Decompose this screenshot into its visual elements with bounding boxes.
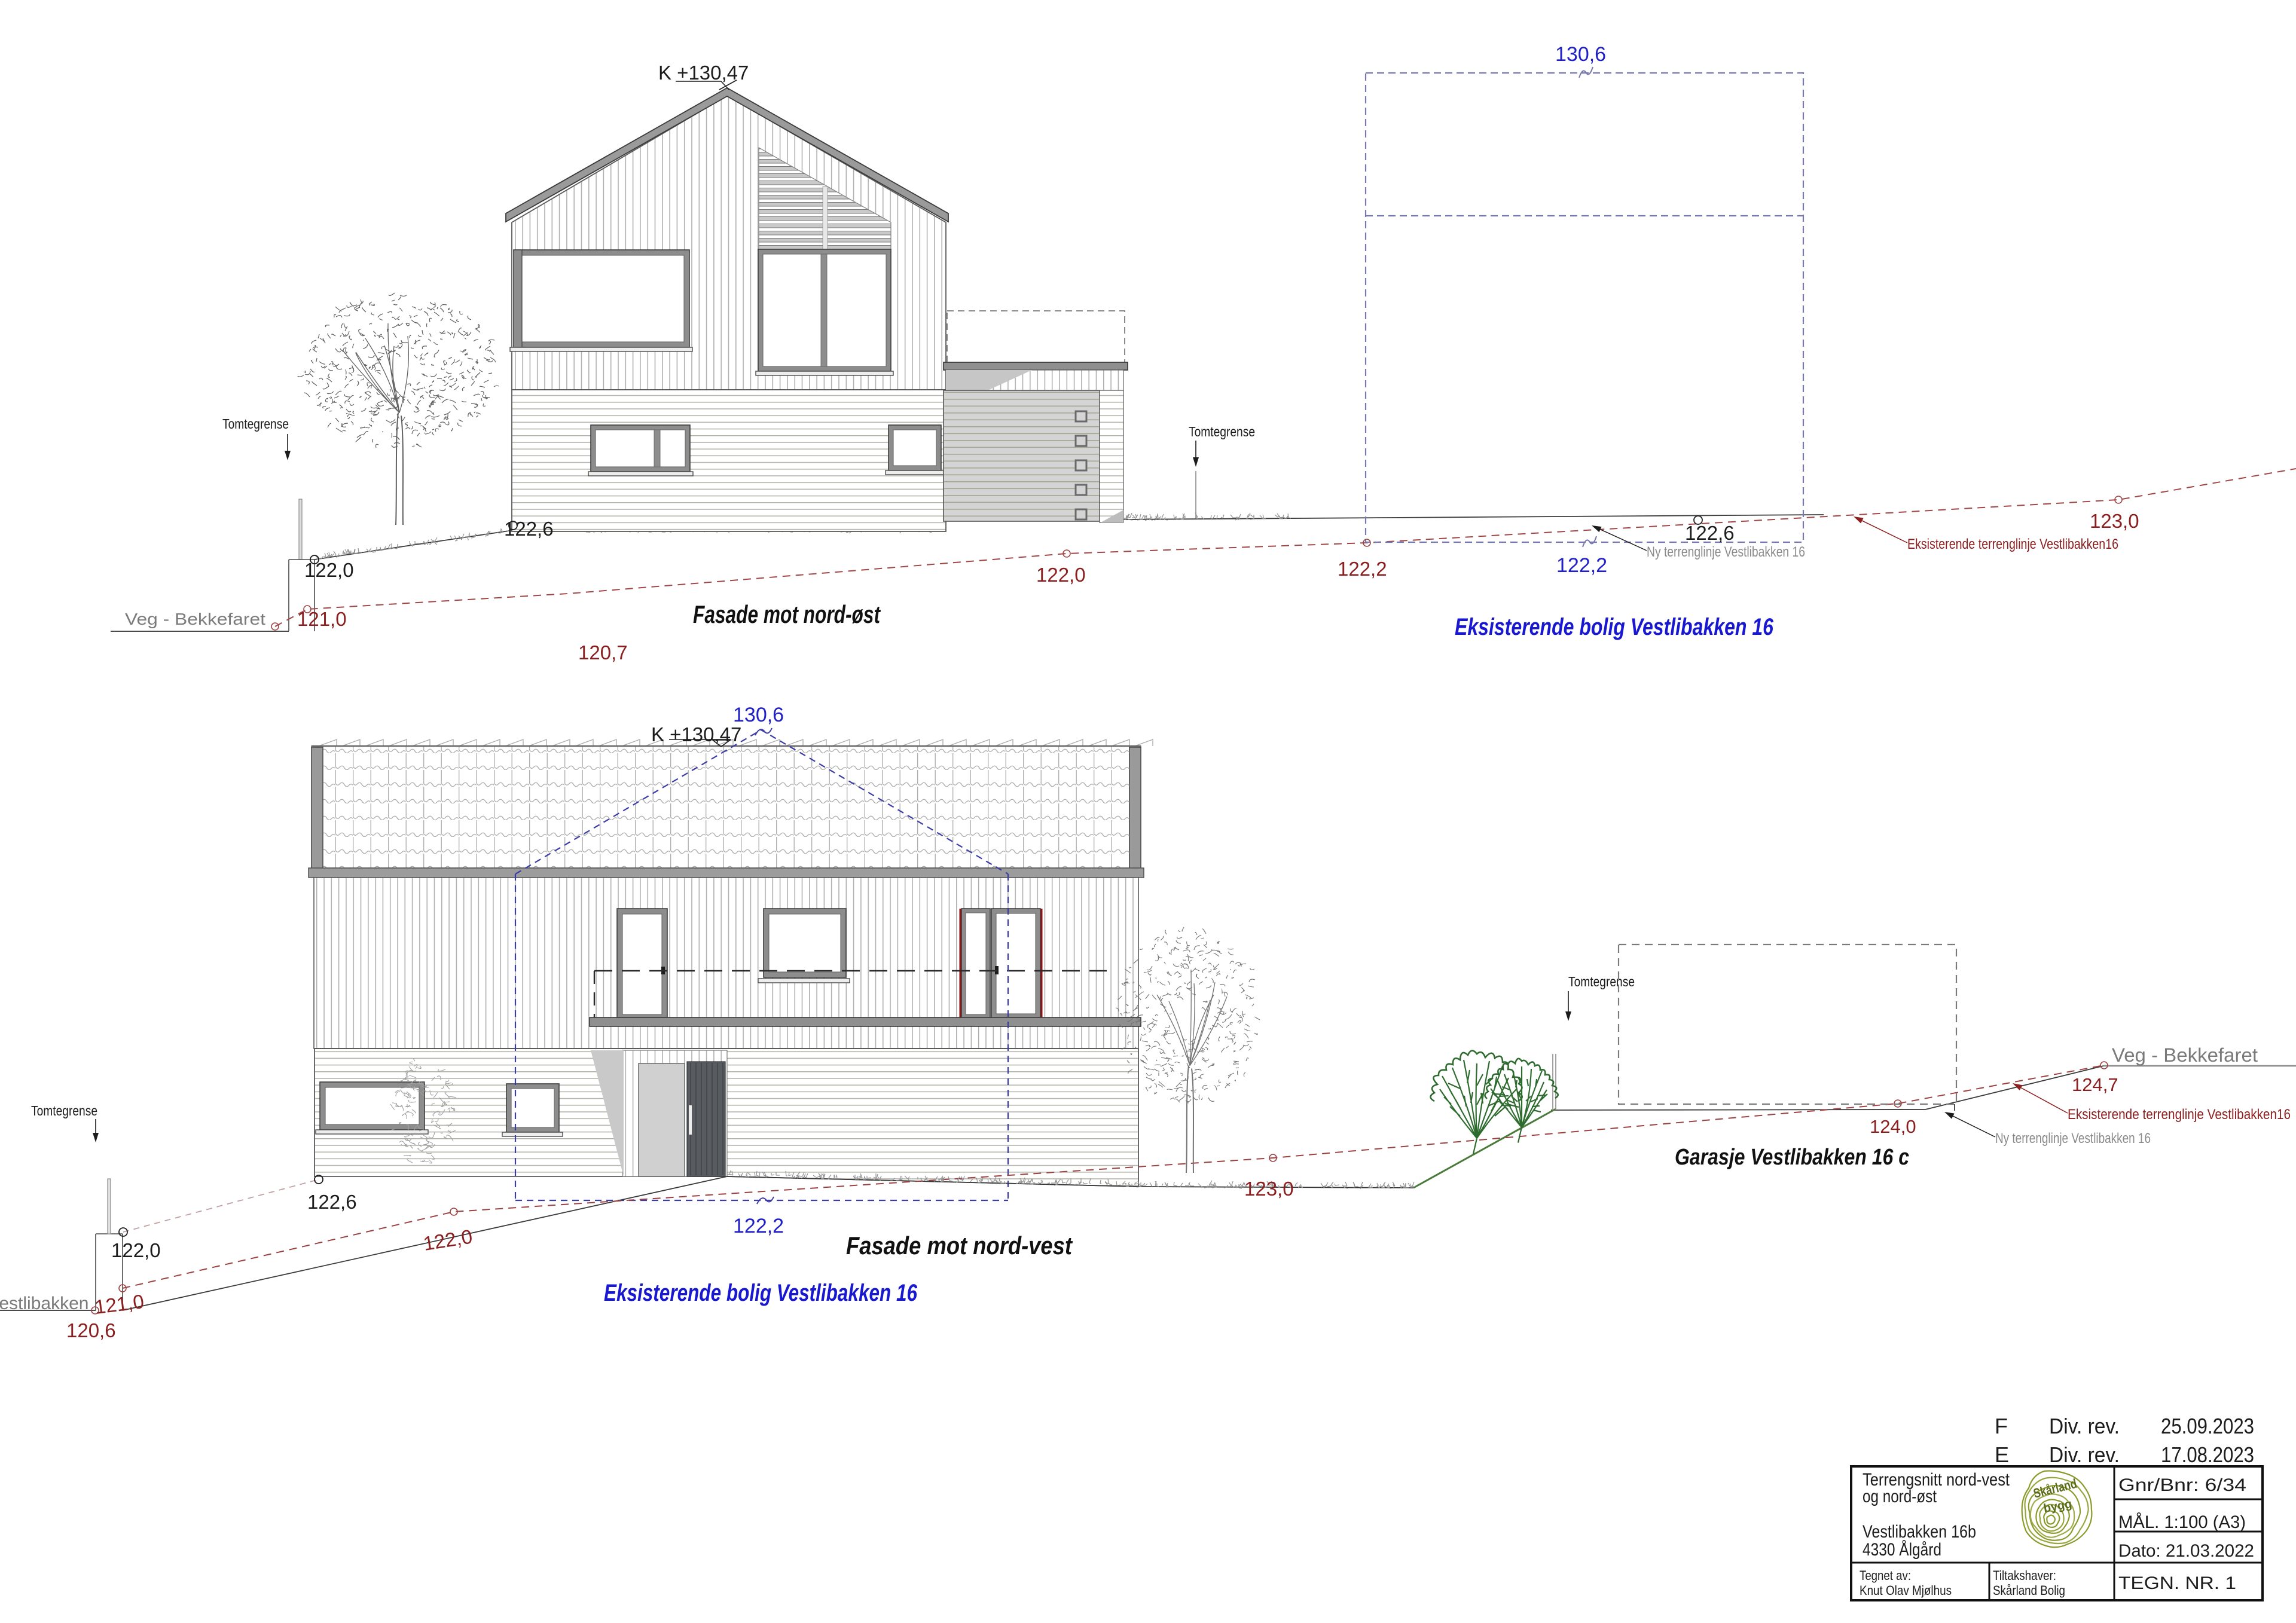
svg-text:Skårland Bolig: Skårland Bolig xyxy=(1993,1583,2065,1598)
svg-text:Dato: 21.03.2022: Dato: 21.03.2022 xyxy=(2118,1541,2254,1561)
svg-text:K +130,47: K +130,47 xyxy=(651,723,741,745)
svg-text:122,6: 122,6 xyxy=(504,518,554,540)
svg-text:Knut Olav Mjølhus: Knut Olav Mjølhus xyxy=(1860,1583,1952,1598)
svg-text:122,6: 122,6 xyxy=(1685,522,1735,544)
svg-text:122,0: 122,0 xyxy=(111,1239,161,1261)
svg-text:Ny terrenglinje Vestlibakken 1: Ny terrenglinje Vestlibakken 16 xyxy=(1647,544,1805,560)
svg-text:122,0: 122,0 xyxy=(304,559,354,581)
svg-text:122,2: 122,2 xyxy=(1338,558,1387,580)
svg-text:130,6: 130,6 xyxy=(1555,43,1606,66)
svg-text:Tomtegrense: Tomtegrense xyxy=(1189,424,1255,439)
svg-text:Eksisterende bolig Vestlibakke: Eksisterende bolig Vestlibakken 16 xyxy=(604,1280,918,1306)
svg-text:Tomtegrense: Tomtegrense xyxy=(1568,974,1635,989)
svg-text:Div. rev.: Div. rev. xyxy=(2049,1442,2120,1467)
svg-text:123,0: 123,0 xyxy=(1244,1178,1294,1200)
svg-text:120,6: 120,6 xyxy=(66,1319,116,1341)
svg-text:Fasade mot nord-vest: Fasade mot nord-vest xyxy=(846,1231,1073,1260)
svg-text:og nord-øst: og nord-øst xyxy=(1863,1487,1937,1506)
svg-text:Ny terrenglinje Vestlibakken 1: Ny terrenglinje Vestlibakken 16 xyxy=(1995,1130,2151,1147)
svg-text:Tegnet av:: Tegnet av: xyxy=(1860,1568,1911,1583)
svg-text:Tiltakshaver:: Tiltakshaver: xyxy=(1993,1568,2056,1583)
svg-text:Div. rev.: Div. rev. xyxy=(2049,1414,2120,1438)
svg-text:TEGN. NR. 1: TEGN. NR. 1 xyxy=(2118,1573,2236,1593)
svg-text:Vestlibakken 16b: Vestlibakken 16b xyxy=(1863,1522,1976,1542)
svg-text:17.08.2023: 17.08.2023 xyxy=(2161,1442,2254,1467)
svg-text:Fasade mot nord-øst: Fasade mot nord-øst xyxy=(693,600,881,628)
svg-text:120,7: 120,7 xyxy=(578,641,628,664)
svg-text:Eksisterende bolig Vestlibakke: Eksisterende bolig Vestlibakken 16 xyxy=(1455,614,1774,640)
svg-text:Veg - Bekkefaret: Veg - Bekkefaret xyxy=(2112,1044,2258,1066)
svg-text:E: E xyxy=(1995,1442,2009,1467)
svg-text:122,2: 122,2 xyxy=(1556,554,1607,577)
svg-text:Garasje Vestlibakken 16 c: Garasje Vestlibakken 16 c xyxy=(1675,1145,1909,1170)
svg-text:124,0: 124,0 xyxy=(1870,1116,1916,1137)
svg-text:122,6: 122,6 xyxy=(307,1191,357,1213)
svg-text:Gnr/Bnr: 6/34: Gnr/Bnr: 6/34 xyxy=(2118,1475,2246,1495)
svg-text:Eksisterende terrenglinje Ves: Eksisterende terrenglinje Vestlibakken16 xyxy=(1907,536,2118,552)
svg-text:122,0: 122,0 xyxy=(1036,564,1086,586)
svg-text:123,0: 123,0 xyxy=(2090,510,2139,532)
svg-text:Veg - Bekkefaret: Veg - Bekkefaret xyxy=(125,610,265,628)
svg-text:25.09.2023: 25.09.2023 xyxy=(2161,1414,2254,1438)
svg-text:MÅL. 1:100 (A3): MÅL. 1:100 (A3) xyxy=(2118,1512,2246,1532)
svg-text:124,7: 124,7 xyxy=(2072,1074,2118,1095)
svg-text:Tomtegrense: Tomtegrense xyxy=(31,1103,97,1118)
svg-text:4330 Ålgård: 4330 Ålgård xyxy=(1863,1540,1941,1560)
svg-text:F: F xyxy=(1995,1414,2008,1438)
svg-text:121,0: 121,0 xyxy=(297,608,347,630)
svg-text:Tomtegrense: Tomtegrense xyxy=(222,416,289,432)
svg-text:122,2: 122,2 xyxy=(733,1215,784,1237)
svg-text:Eksisterende terrenglinje Ves: Eksisterende terrenglinje Vestlibakken16 xyxy=(2068,1107,2291,1123)
